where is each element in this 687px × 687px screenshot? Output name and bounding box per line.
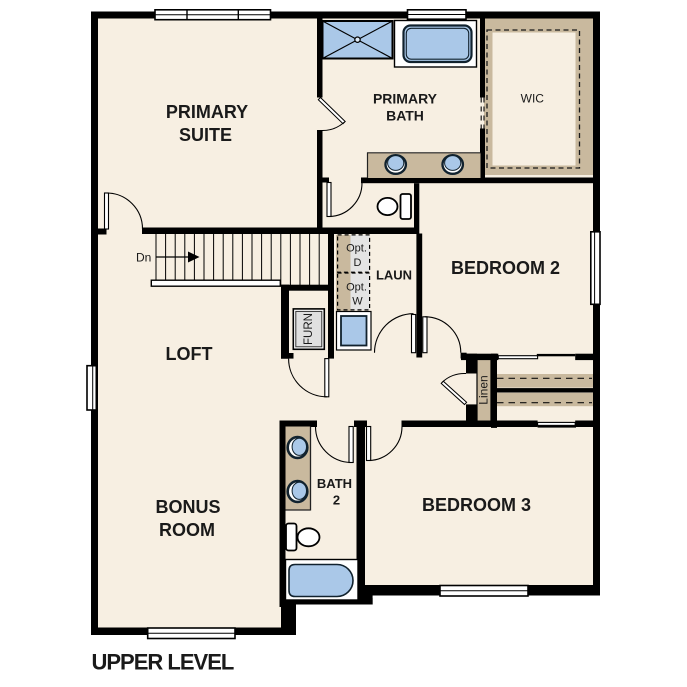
svg-text:BONUS: BONUS xyxy=(155,497,220,517)
svg-text:W: W xyxy=(352,296,363,308)
svg-text:PRIMARY: PRIMARY xyxy=(166,102,248,122)
svg-text:D: D xyxy=(354,257,362,269)
svg-text:Opt.: Opt. xyxy=(346,243,367,255)
svg-text:Dn: Dn xyxy=(136,251,151,265)
svg-text:LOFT: LOFT xyxy=(166,344,213,364)
svg-text:UPPER LEVEL: UPPER LEVEL xyxy=(92,650,234,675)
svg-text:2: 2 xyxy=(333,493,340,508)
svg-text:Opt.: Opt. xyxy=(346,282,367,294)
svg-text:ROOM: ROOM xyxy=(159,520,215,540)
svg-text:WIC: WIC xyxy=(521,92,545,106)
svg-text:LAUN: LAUN xyxy=(376,268,412,283)
svg-text:BATH: BATH xyxy=(386,107,424,123)
svg-text:PRIMARY: PRIMARY xyxy=(373,91,438,107)
svg-text:SUITE: SUITE xyxy=(179,125,232,145)
svg-text:BATH: BATH xyxy=(317,476,352,491)
svg-text:BEDROOM 3: BEDROOM 3 xyxy=(422,495,531,515)
svg-text:FURN: FURN xyxy=(303,313,315,345)
svg-text:BEDROOM 2: BEDROOM 2 xyxy=(451,258,560,278)
svg-text:Linen: Linen xyxy=(477,375,491,404)
